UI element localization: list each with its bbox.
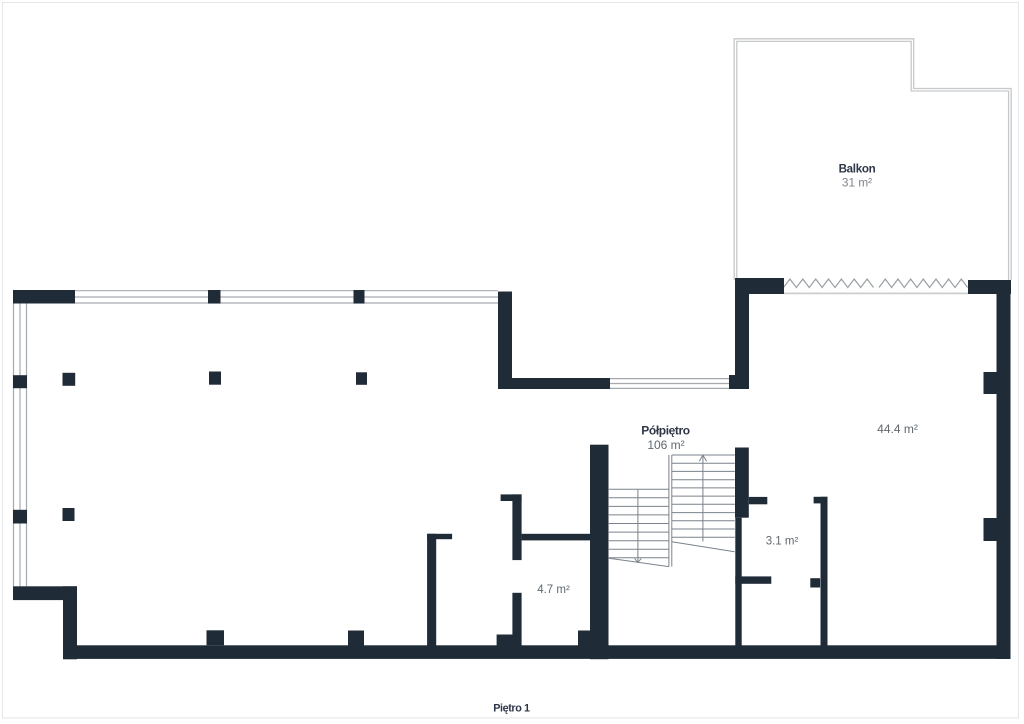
svg-text:106 m²: 106 m²: [647, 438, 684, 452]
svg-text:Piętro 1: Piętro 1: [493, 702, 530, 714]
svg-text:Półpiętro: Półpiętro: [641, 424, 689, 438]
svg-text:44.4 m²: 44.4 m²: [877, 422, 918, 436]
svg-text:Balkon: Balkon: [839, 163, 876, 176]
svg-text:31 m²: 31 m²: [842, 176, 872, 190]
svg-text:4.7 m²: 4.7 m²: [537, 584, 570, 596]
svg-text:3.1 m²: 3.1 m²: [766, 536, 799, 548]
